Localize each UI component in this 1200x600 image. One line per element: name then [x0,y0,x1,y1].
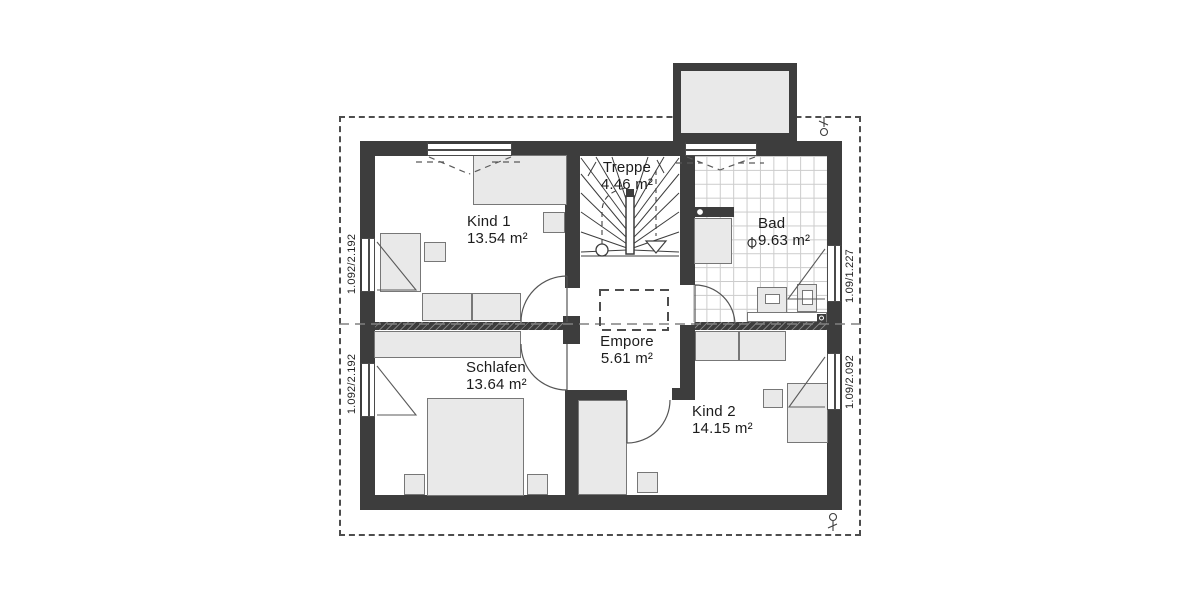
room-name: Schlafen [466,359,527,376]
bath-shower [694,218,732,264]
room-area: 5.61 m² [594,350,660,367]
wall-stair-left [565,156,580,288]
dimension-left-upper: 1.092/2.192 [346,219,358,309]
window-kind2-right [827,353,842,410]
knee-wall-left [360,322,578,330]
wall-bottom [360,495,842,510]
kind2-bed [787,383,828,443]
window-bad-right [827,245,842,302]
kind1-nightstand [424,242,446,262]
dimension-left-lower: 1.092/2.192 [346,339,358,429]
room-area: 13.64 m² [466,376,527,393]
kind2-wardrobe-a [695,331,739,361]
room-label-schlafen: Schlafen 13.64 m² [466,359,527,393]
room-name: Kind 1 [467,213,528,230]
wall-right-c [827,410,842,510]
room-area: 13.54 m² [467,230,528,247]
kind1-bed [380,233,421,292]
wall-top-b [512,141,685,156]
window-bad-top [685,141,757,156]
wall-empore-bottom [565,390,627,400]
wall-left-a [360,141,375,238]
room-area: 4.46 m² [590,176,664,193]
wall-left-c [360,417,375,510]
room-name: Empore [594,333,660,350]
room-name: Treppe [590,159,664,176]
schlafen-wardrobe [374,331,521,358]
room-area: 9.63 m² [758,232,810,249]
bath-half-wall [684,207,734,217]
kind1-wardrobe-a [422,293,472,321]
bath-counter [747,312,827,322]
schlafen-bed [427,398,524,496]
room-label-empore: Empore 5.61 m² [594,333,660,367]
wall-left-b [360,292,375,363]
kind2-tall-wardrobe [578,400,627,495]
wall-right-a [827,141,842,245]
room-area: 14.15 m² [692,420,753,437]
floor-plan-canvas: Kind 1 13.54 m² Treppe 4.46 m² Bad 9.63 … [0,0,1200,600]
room-label-treppe: Treppe 4.46 m² [590,159,664,193]
kind2-nightstand [763,389,783,408]
kind1-wardrobe-b [472,293,521,321]
bath-wc-seat [802,290,813,305]
wall-junction-block [563,316,580,344]
room-name: Kind 2 [692,403,753,420]
kind2-stool [637,472,658,493]
wall-right-b [827,302,842,353]
dormer-box [673,63,797,141]
dimension-right-upper: 1.09/1.227 [844,231,856,321]
dimension-right-lower: 1.09/2.092 [844,337,856,427]
schlafen-nightstand-left [404,474,425,495]
wall-corner-post [672,388,695,400]
room-label-kind1: Kind 1 13.54 m² [467,213,528,247]
kind1-stool [543,212,565,233]
wall-stair-right [680,156,695,285]
window-kind1-top [427,141,512,156]
window-kind1-left [360,238,375,292]
knee-wall-right [695,322,842,330]
room-label-bad: Bad 9.63 m² [758,215,810,249]
room-name: Bad [758,215,810,232]
room-label-kind2: Kind 2 14.15 m² [692,403,753,437]
kind1-desk [473,155,567,205]
schlafen-nightstand-right [527,474,548,495]
window-schlafen-left [360,363,375,417]
bath-washbasin-bowl [765,294,780,304]
kind2-wardrobe-b [739,331,786,361]
